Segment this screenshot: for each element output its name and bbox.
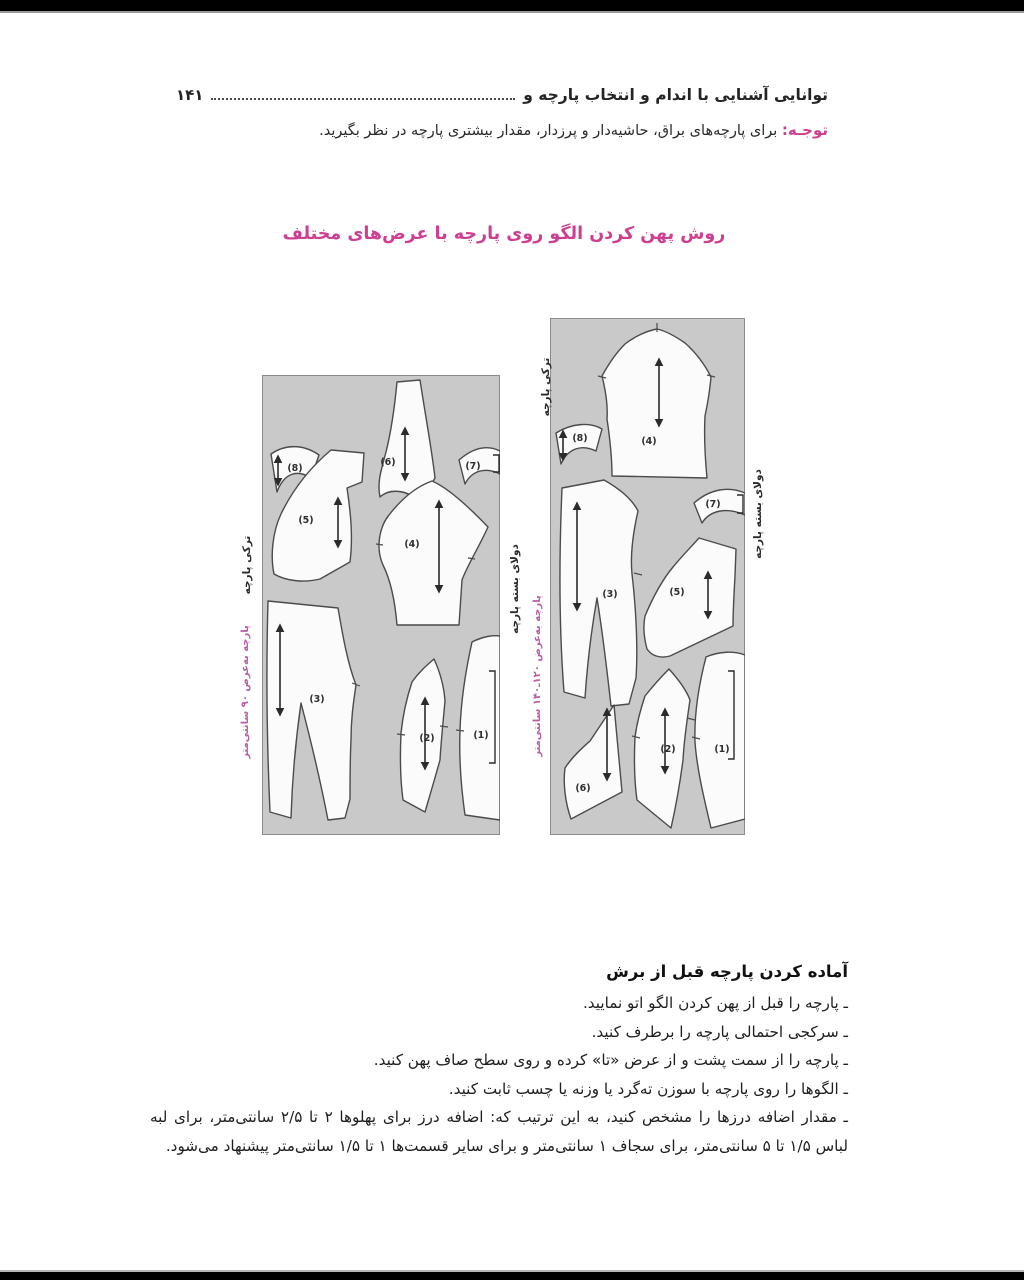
prep-section: آماده کردن پارچه قبل از برش ـ پارچه را ق… xyxy=(150,962,848,1160)
prep-bullet: ـ پارچه را قبل از پهن کردن الگو اتو نمای… xyxy=(150,989,848,1018)
selvage-label-right-panel: ترکی پارچه xyxy=(537,302,555,472)
figure-title: روش پهن کردن الگو روی پارچه با عرض‌های م… xyxy=(160,224,848,244)
piece-label-8: (8) xyxy=(287,463,302,474)
piece-label-7: (7) xyxy=(705,499,720,510)
piece-label-2: (2) xyxy=(660,744,675,755)
piece-label-8: (8) xyxy=(572,433,587,444)
textbook-page: ۱۴۱ توانایی آشنایی با اندام و انتخاب پار… xyxy=(0,0,1024,1280)
note-text: برای پارچه‌های براق، حاشیه‌دار و پرزدار،… xyxy=(319,123,777,139)
fabric-layout-svg-right: (4) (8) (7) (3) (5) (6) (2) (1) xyxy=(550,318,745,835)
piece-label-1: (1) xyxy=(714,744,729,755)
prep-heading: آماده کردن پارچه قبل از برش xyxy=(150,962,848,981)
prep-bullet: ـ سرکجی احتمالی پارچه را برطرف کنید. xyxy=(150,1018,848,1047)
top-letterbox-bar xyxy=(0,0,1024,13)
note-label: توجـه: xyxy=(782,121,828,139)
bottom-letterbox-bar xyxy=(0,1270,1024,1280)
piece-label-6: (6) xyxy=(575,783,590,794)
piece-label-2: (2) xyxy=(419,733,434,744)
fabric-layout-panel-90cm: (8) (6) (7) (5) (4) (3) (2) (1) xyxy=(262,375,500,835)
fabric-layout-svg-left: (8) (6) (7) (5) (4) (3) (2) (1) xyxy=(262,375,500,835)
fabric-width-label-left-panel: پارچه به‌عرض ۹۰ سانتی‌متر xyxy=(237,607,255,777)
piece-label-6: (6) xyxy=(380,457,395,468)
piece-label-4: (4) xyxy=(404,539,419,550)
prep-bullet: ـ مقدار اضافه درزها را مشخص کنید، به این… xyxy=(150,1103,848,1160)
fold-label-left-panel: دولای بسته پارچه xyxy=(506,504,524,674)
piece-label-7: (7) xyxy=(465,461,480,472)
fold-label-right-panel: دولای بسته پارچه xyxy=(749,429,767,599)
piece-label-3: (3) xyxy=(309,694,324,705)
fabric-layout-panel-120-140cm: (4) (8) (7) (3) (5) (6) (2) (1) xyxy=(550,318,745,835)
piece-label-5: (5) xyxy=(298,515,313,526)
prep-bullet: ـ الگوها را روی پارچه با سوزن ته‌گرد یا … xyxy=(150,1075,848,1104)
fabric-width-label-right-panel: پارچه به‌عرض ۱۲۰ـ۱۴۰ سانتی‌متر xyxy=(529,591,547,761)
piece-label-4: (4) xyxy=(641,436,656,447)
piece-label-5: (5) xyxy=(669,587,684,598)
page-number: ۱۴۱ xyxy=(176,86,203,104)
chapter-title: توانایی آشنایی با اندام و انتخاب پارچه و xyxy=(523,86,828,104)
piece-label-1: (1) xyxy=(473,730,488,741)
prep-bullet: ـ پارچه را از سمت پشت و از عرض «تا» کرده… xyxy=(150,1046,848,1075)
dotted-leader xyxy=(211,98,515,100)
note-line: توجـه: برای پارچه‌های براق، حاشیه‌دار و … xyxy=(170,121,828,139)
piece-label-3: (3) xyxy=(602,589,617,600)
page-header: ۱۴۱ توانایی آشنایی با اندام و انتخاب پار… xyxy=(176,84,828,106)
